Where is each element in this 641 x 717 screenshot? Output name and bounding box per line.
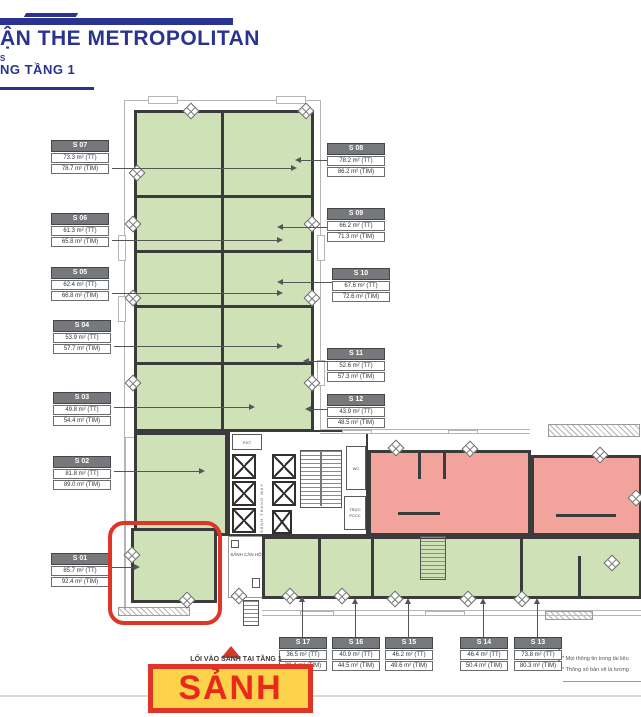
unit-id: S 06 — [51, 213, 109, 225]
entrance-steps — [243, 600, 259, 626]
walkway-tab — [342, 430, 372, 434]
unit-label-s15: S 15 46.2 m² (TT) 49.6 m² (TIM) — [385, 637, 433, 671]
leader-line — [537, 603, 538, 637]
wall — [221, 110, 224, 432]
wc-room: WC — [346, 446, 366, 490]
unit-area-tt: 53.9 m² (TT) — [53, 333, 111, 343]
unit-label-s10: S 10 67.6 m² (TT) 72.6 m² (TIM) — [332, 268, 390, 302]
unit-id: S 02 — [53, 456, 111, 468]
fire-duty-room: TRỰC PCCC — [344, 496, 366, 530]
unit-id: S 17 — [279, 637, 327, 649]
unit-label-s03: S 03 49.8 m² (TT) 54.4 m² (TIM) — [53, 392, 111, 426]
leader-line — [355, 603, 356, 637]
unit-label-s11: S 11 52.6 m² (TT) 57.3 m² (TIM) — [327, 348, 385, 382]
unit-area-tim: 86.2 m² (TIM) — [327, 167, 385, 177]
unit-label-s07: S 07 73.3 m² (TT) 78.7 m² (TIM) — [51, 140, 109, 174]
unit-label-s05: S 05 62.4 m² (TT) 66.8 m² (TIM) — [51, 267, 109, 301]
unit-label-s12: S 12 43.9 m² (TT) 48.5 m² (TIM) — [327, 394, 385, 428]
unit-area-tt: 73.3 m² (TT) — [51, 153, 109, 163]
unit-area-tim: 89.0 m² (TIM) — [53, 480, 111, 490]
header-rule-top — [0, 18, 233, 25]
entrance-note: LỐI VÀO SẢNH TẠI TẦNG 1 — [156, 656, 316, 663]
balcony-tab — [118, 296, 126, 322]
technical-room: P.KT — [232, 434, 262, 450]
wall — [578, 556, 581, 599]
page-title: ẬN THE METROPOLITAN — [0, 27, 260, 51]
footnote-rule — [563, 681, 641, 682]
unit-id: S 14 — [460, 637, 508, 649]
balcony-hatch — [548, 424, 640, 437]
unit-area-tim: 57.3 m² (TIM) — [327, 372, 385, 382]
page-divider — [0, 695, 641, 697]
unit-id: S 08 — [327, 143, 385, 155]
elevator-lobby-label: SẢNH THANG MÁY — [259, 455, 264, 533]
elevator — [232, 508, 256, 533]
unit-id: S 04 — [53, 320, 111, 332]
wall — [371, 536, 374, 599]
unit-area-tt: 73.8 m² (TT) — [514, 650, 562, 660]
unit-area-tim: 78.7 m² (TIM) — [51, 164, 109, 174]
elevator — [272, 481, 296, 506]
stairs — [420, 536, 446, 580]
unit-area-tt: 66.2 m² (TT) — [327, 221, 385, 231]
unit-label-s01: S 01 85.7 m² (TT) 92.4 m² (TIM) — [51, 553, 109, 587]
unit-area-tt: 62.4 m² (TT) — [51, 280, 109, 290]
wall — [556, 514, 616, 517]
unit-id: S 09 — [327, 208, 385, 220]
unit-area-tim: 44.5 m² (TIM) — [332, 661, 380, 671]
walkway-tab — [300, 611, 334, 616]
wall — [134, 362, 314, 365]
wall — [134, 305, 314, 308]
unit-id: S 12 — [327, 394, 385, 406]
unit-area-tim: 50.4 m² (TIM) — [460, 661, 508, 671]
unit-area-tt: 67.6 m² (TT) — [332, 281, 390, 291]
leader-line — [282, 282, 332, 283]
unit-id: S 05 — [51, 267, 109, 279]
unit-area-tt: 61.3 m² (TT) — [51, 226, 109, 236]
header-rule-bottom — [0, 87, 94, 90]
furniture — [231, 540, 239, 548]
leader-line — [114, 471, 200, 472]
leader-line — [114, 407, 250, 408]
walkway-tab — [448, 430, 478, 434]
unit-label-s08: S 08 78.2 m² (TT) 86.2 m² (TIM) — [327, 143, 385, 177]
unit-id: S 01 — [51, 553, 109, 565]
unit-id: S 16 — [332, 637, 380, 649]
balcony-tab — [276, 96, 306, 104]
wall — [134, 250, 314, 253]
unit-area-tt: 52.6 m² (TT) — [327, 361, 385, 371]
wall — [443, 453, 446, 479]
leader-line — [483, 603, 484, 637]
unit-area-tt: 85.7 m² (TT) — [51, 566, 109, 576]
unit-area-tt: 46.2 m² (TT) — [385, 650, 433, 660]
footnote-2: * Thông số bản vẽ là tương — [562, 666, 641, 675]
leader-line — [112, 240, 278, 241]
unit-area-tim: 65.8 m² (TIM) — [51, 237, 109, 247]
unit-id: S 07 — [51, 140, 109, 152]
unit-area-tim: 66.8 m² (TIM) — [51, 291, 109, 301]
commercial-unit — [531, 455, 641, 536]
leader-line — [302, 601, 303, 637]
unit-area-tim: 71.3 m² (TIM) — [327, 232, 385, 242]
wall — [318, 536, 321, 599]
wall — [398, 512, 440, 515]
unit-area-tim: 48.5 m² (TIM) — [327, 418, 385, 428]
unit-area-tim: 54.4 m² (TIM) — [53, 416, 111, 426]
elevator — [272, 454, 296, 479]
unit-label-s16: S 16 40.9 m² (TT) 44.5 m² (TIM) — [332, 637, 380, 671]
leader-line — [408, 603, 409, 637]
logo-fragment — [24, 13, 78, 17]
balcony-tab — [317, 235, 325, 261]
unit-label-s13: S 13 73.8 m² (TT) 80.3 m² (TIM) — [514, 637, 562, 671]
unit-label-s04: S 04 53.9 m² (TT) 57.7 m² (TIM) — [53, 320, 111, 354]
floor-label: NG TẦNG 1 — [0, 62, 75, 77]
unit-area-tt: 43.9 m² (TT) — [327, 407, 385, 417]
lobby-label: SẢNH CĂN HỘ — [229, 552, 263, 557]
furniture — [252, 578, 260, 588]
unit-area-tim: 72.6 m² (TIM) — [332, 292, 390, 302]
service-shaft — [272, 510, 292, 534]
unit-area-tt: 49.8 m² (TT) — [53, 405, 111, 415]
unit-id: S 10 — [332, 268, 390, 280]
commercial-unit — [368, 450, 531, 536]
floorplan-page: ẬN THE METROPOLITAN S NG TẦNG 1 P.KT SẢN… — [0, 0, 641, 717]
unit-area-tt: 40.9 m² (TT) — [332, 650, 380, 660]
walkway-hatch — [545, 611, 593, 620]
balcony-tab — [148, 96, 178, 104]
wall — [418, 453, 421, 479]
elevator — [232, 481, 256, 506]
elevator — [232, 454, 256, 479]
unit-area-tim: 80.3 m² (TIM) — [514, 661, 562, 671]
unit-id: S 11 — [327, 348, 385, 360]
unit-area-tim: 57.7 m² (TIM) — [53, 344, 111, 354]
leader-line — [112, 168, 292, 169]
unit-area-tim: 92.4 m² (TIM) — [51, 577, 109, 587]
unit-area-tt: 81.8 m² (TT) — [53, 469, 111, 479]
unit-id: S 03 — [53, 392, 111, 404]
wall — [134, 195, 314, 198]
unit-id: S 13 — [514, 637, 562, 649]
unit-label-s02: S 02 81.8 m² (TT) 89.0 m² (TIM) — [53, 456, 111, 490]
leader-line — [282, 227, 327, 228]
leader-line — [112, 293, 278, 294]
unit-label-s14: S 14 46.4 m² (TT) 50.4 m² (TIM) — [460, 637, 508, 671]
unit-area-tt: 46.4 m² (TT) — [460, 650, 508, 660]
unit-s01-highlight — [108, 521, 222, 625]
stair-divider — [320, 452, 322, 506]
leader-line — [308, 361, 327, 362]
unit-area-tim: 49.6 m² (TIM) — [385, 661, 433, 671]
walkway-tab — [425, 611, 465, 616]
leader-line — [300, 160, 327, 161]
balcony-tab — [118, 235, 126, 261]
unit-label-s06: S 06 61.3 m² (TT) 65.8 m² (TIM) — [51, 213, 109, 247]
unit-id: S 15 — [385, 637, 433, 649]
leader-line — [114, 346, 278, 347]
unit-area-tt: 78.2 m² (TT) — [327, 156, 385, 166]
lobby-callout: SẢNH — [148, 664, 313, 713]
footnote-1: * Mọi thông tin trong tài liệu — [562, 655, 641, 664]
upper-wing-units — [134, 110, 314, 432]
unit-label-s09: S 09 66.2 m² (TT) 71.3 m² (TIM) — [327, 208, 385, 242]
leader-line — [310, 409, 327, 410]
